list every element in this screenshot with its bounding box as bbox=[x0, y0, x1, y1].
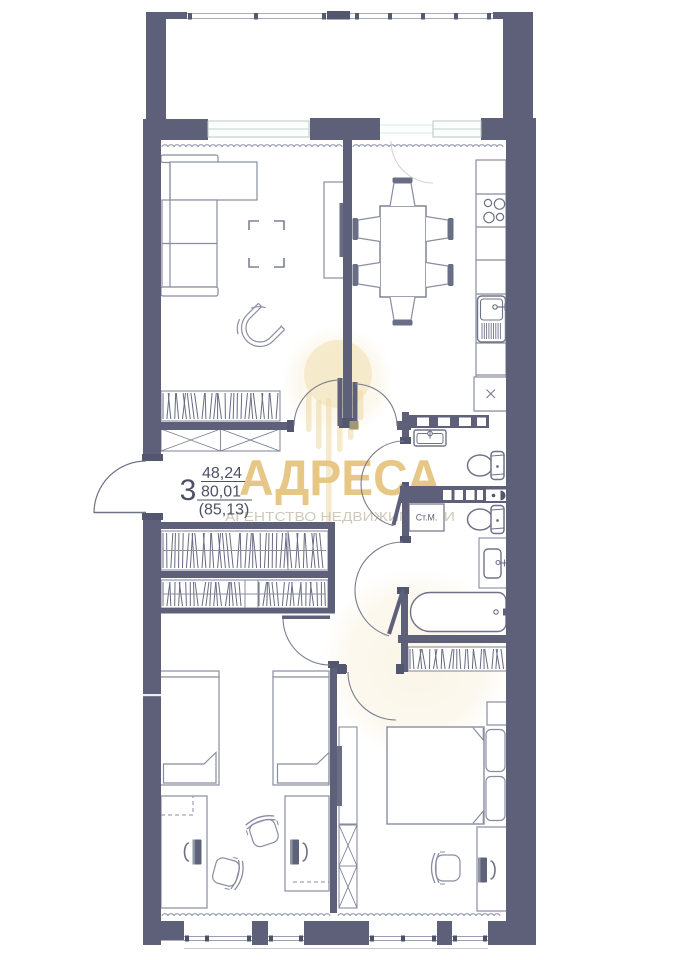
svg-text:(85,13): (85,13) bbox=[199, 502, 250, 519]
svg-text:Ст.М.: Ст.М. bbox=[416, 513, 438, 523]
svg-text:80,01: 80,01 bbox=[201, 484, 241, 501]
svg-text:3: 3 bbox=[180, 474, 197, 507]
svg-text:48,24: 48,24 bbox=[202, 465, 242, 482]
